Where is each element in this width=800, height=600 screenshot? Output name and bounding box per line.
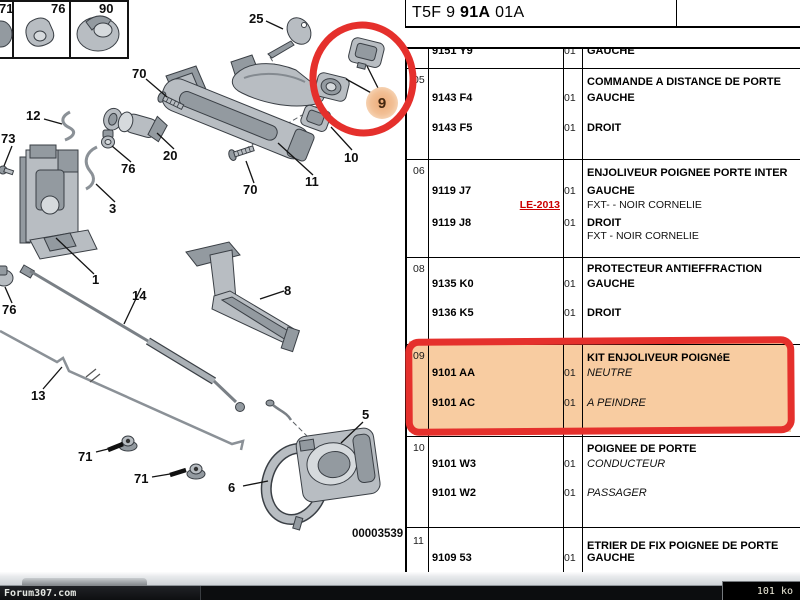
- part-label-76-b: 76: [121, 162, 135, 175]
- table-section-11[interactable]: 11 ETRIER DE FIX POIGNEE DE PORTE 9109 5…: [405, 528, 800, 572]
- part-label-9: 9: [378, 95, 386, 112]
- part-label-25: 25: [249, 12, 263, 25]
- le2013-link[interactable]: LE-2013: [432, 199, 560, 211]
- cable-part-14: [20, 265, 245, 412]
- exterior-handle-part: [231, 55, 324, 106]
- table-section-08[interactable]: 08 PROTECTEUR ANTIEFFRACTION 9135 K0 01 …: [405, 258, 800, 345]
- table-top-border: [405, 47, 800, 49]
- part-label-1: 1: [92, 273, 99, 286]
- part-desc: GAUCHE: [587, 552, 635, 564]
- part-9-highlight-dot: 9: [366, 87, 398, 119]
- part-desc: GAUCHE: [587, 92, 635, 104]
- section-title: ENJOLIVEUR POIGNEE PORTE INTER: [587, 167, 787, 179]
- protector-bracket-part: [186, 242, 299, 352]
- parts-table: 9151 Y9 01 GAUCHE 05 COMMANDE A DISTANCE…: [405, 47, 800, 572]
- part-label-11: 11: [305, 175, 319, 188]
- part-number: 9101 AC: [432, 397, 475, 409]
- part-qty: 01: [564, 487, 576, 499]
- part-number: 9109 53: [432, 552, 472, 564]
- part-qty: 01: [564, 367, 576, 379]
- key-part: [268, 13, 316, 58]
- section-ref: 05: [413, 74, 425, 86]
- table-section-partial[interactable]: 9151 Y9 01 GAUCHE: [405, 47, 800, 69]
- part-number: 9101 AA: [432, 367, 475, 379]
- section-ref: 06: [413, 165, 425, 177]
- part-label-90: 90: [99, 2, 113, 15]
- part-desc: DROIT: [587, 217, 621, 229]
- part-label-70-b: 70: [243, 183, 257, 196]
- table-section-09[interactable]: 09 KIT ENJOLIVEUR POIGNéE 9101 AA 01 NEU…: [405, 345, 800, 437]
- part-desc: GAUCHE: [587, 185, 635, 197]
- part-qty: 01: [564, 122, 576, 134]
- watermark-box: Forum307.com: [0, 586, 201, 600]
- part-qty: 01: [564, 217, 576, 229]
- part-label-71-a: 71: [0, 2, 13, 15]
- section-ref: 10: [413, 442, 425, 454]
- part-label-76-c: 76: [2, 303, 16, 316]
- part-number: 9119 J8: [432, 217, 471, 229]
- clip-part-76a: [102, 130, 115, 148]
- part-desc: A PEINDRE: [587, 397, 646, 409]
- file-size-box: 101 ko: [722, 581, 800, 600]
- part-label-3: 3: [109, 202, 116, 215]
- part-label-13: 13: [31, 389, 45, 402]
- table-section-10[interactable]: 10 POIGNEE DE PORTE 9101 W3 01 CONDUCTEU…: [405, 437, 800, 528]
- section-title: POIGNEE DE PORTE: [587, 443, 696, 455]
- nut-part-71b: [187, 464, 205, 479]
- diagram-artwork: [0, 0, 408, 572]
- document-code-header: T5F 9 91A 01A: [405, 0, 800, 28]
- part-label-76-a: 76: [51, 2, 65, 15]
- part-label-14: 14: [132, 289, 146, 302]
- watermark-text: Forum307.com: [4, 588, 76, 599]
- rod-part-3: [86, 147, 97, 189]
- part-desc: GAUCHE: [587, 278, 635, 290]
- part-label-73: 73: [1, 132, 15, 145]
- part-label-70-a: 70: [132, 67, 146, 80]
- part-desc: DROIT: [587, 307, 621, 319]
- part-qty: 01: [564, 92, 576, 104]
- part-qty: 01: [564, 552, 576, 564]
- part-qty: 01: [564, 278, 576, 290]
- finish-note: FXT - NOIR CORNELIE: [587, 230, 699, 242]
- part-number: 9101 W3: [432, 458, 476, 470]
- part-qty: 01: [564, 185, 576, 197]
- interior-handle-part: [295, 427, 381, 503]
- section-title: PROTECTEUR ANTIEFFRACTION: [587, 263, 762, 275]
- table-section-06[interactable]: 06 ENJOLIVEUR POIGNEE PORTE INTER 9119 J…: [405, 160, 800, 258]
- drawing-number: 00003539: [352, 528, 403, 540]
- part-number: 9119 J7: [432, 185, 471, 197]
- screw-part-73: [0, 166, 14, 175]
- part-desc: NEUTRE: [587, 367, 632, 379]
- part-desc: PASSAGER: [587, 487, 647, 499]
- section-title: ETRIER DE FIX POIGNEE DE PORTE: [587, 540, 778, 552]
- clip-part-76b: [0, 266, 13, 286]
- section-ref: 08: [413, 263, 425, 275]
- part-label-10: 10: [344, 151, 358, 164]
- handle-wire-part: [266, 400, 291, 420]
- exploded-parts-diagram: 9: [0, 0, 408, 572]
- section-ref: 11: [413, 535, 424, 547]
- part-desc: DROIT: [587, 122, 621, 134]
- part-number: 9143 F5: [432, 122, 472, 134]
- assembly-axis: [293, 422, 307, 436]
- section-ref: 09: [413, 350, 425, 362]
- table-section-05[interactable]: 05 COMMANDE A DISTANCE DE PORTE 9143 F4 …: [405, 69, 800, 160]
- catalog-page: 9: [0, 0, 800, 600]
- part-label-12: 12: [26, 109, 40, 122]
- part-number: 9136 K5: [432, 307, 474, 319]
- rod-part-12: [63, 112, 74, 140]
- part-label-20: 20: [163, 149, 177, 162]
- part-label-8: 8: [284, 284, 291, 297]
- part-desc: CONDUCTEUR: [587, 458, 665, 470]
- part-qty: 01: [564, 397, 576, 409]
- file-size-text: 101 ko: [757, 586, 793, 597]
- part-label-71-b: 71: [78, 450, 92, 463]
- part-number: 9143 F4: [432, 92, 472, 104]
- part-label-5: 5: [362, 408, 369, 421]
- part-number: 9135 K0: [432, 278, 474, 290]
- document-code: T5F 9 91A 01A: [412, 4, 524, 22]
- part-number: 9101 W2: [432, 487, 476, 499]
- part-qty: 01: [564, 307, 576, 319]
- part-qty: 01: [564, 458, 576, 470]
- header-divider: [676, 0, 677, 26]
- part-label-6: 6: [228, 481, 235, 494]
- part-label-71-c: 71: [134, 472, 148, 485]
- section-title: KIT ENJOLIVEUR POIGNéE: [587, 352, 730, 364]
- section-title: COMMANDE A DISTANCE DE PORTE: [587, 76, 781, 88]
- end-cap-part: [299, 104, 332, 133]
- screw-part-70b: [227, 143, 255, 161]
- finish-note: FXT- - NOIR CORNELIE: [587, 199, 702, 211]
